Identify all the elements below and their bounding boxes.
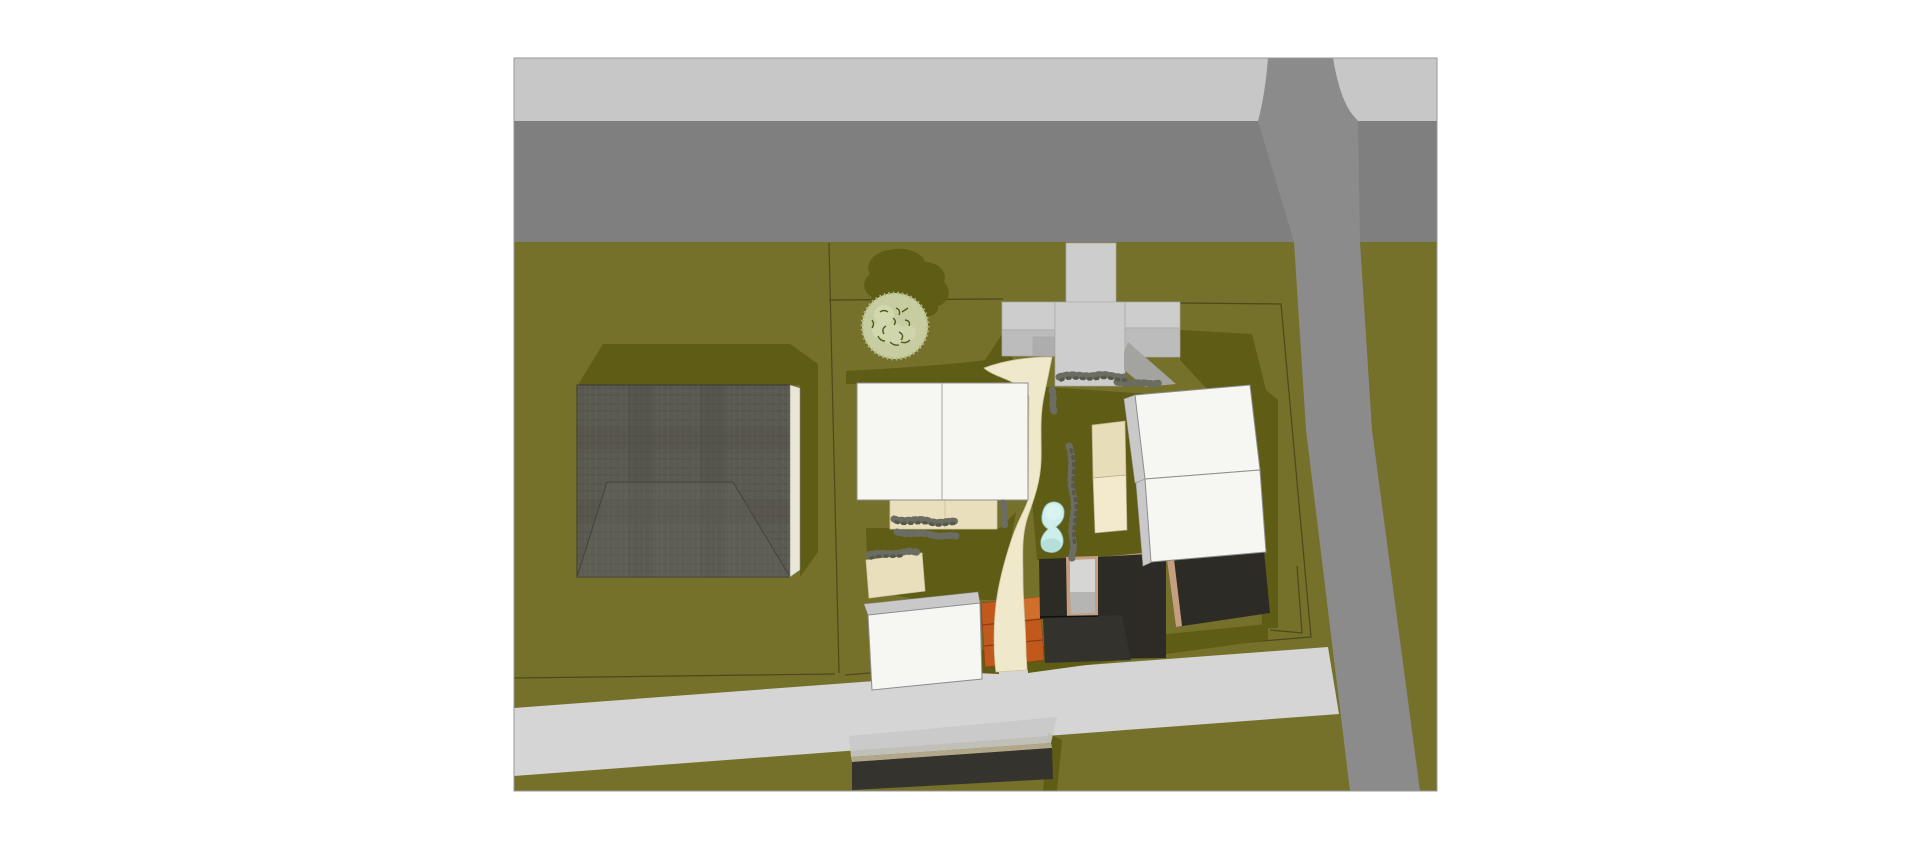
barn	[577, 385, 800, 577]
court-left-wing	[1002, 302, 1055, 330]
court-right-wing	[1125, 302, 1180, 328]
dark-block-c	[1043, 615, 1131, 663]
central-house	[857, 383, 1028, 500]
hedge-path-west	[1003, 503, 1005, 527]
barn-texture-row	[577, 428, 790, 450]
hedge-path-top	[1052, 390, 1054, 411]
barn-side-face	[790, 385, 800, 577]
tan-house-lower-slope	[1093, 475, 1127, 533]
driveway	[1066, 243, 1116, 303]
render-canvas[interactable]	[0, 0, 1920, 861]
courtyard-buildings	[1039, 553, 1166, 663]
hedge-terrace-2	[897, 532, 956, 536]
inset-court-lower	[1070, 592, 1095, 614]
hedge-small-terrace	[869, 551, 920, 555]
block-gap-line	[1040, 616, 1098, 617]
white-house-lower	[1145, 470, 1266, 562]
small-house	[864, 592, 982, 690]
tree-foliage-detail	[872, 322, 888, 338]
tree-foliage-detail	[896, 309, 914, 327]
pool-deep-end	[1041, 539, 1061, 552]
pool-highlight	[1045, 504, 1061, 520]
court-left-step	[1033, 337, 1055, 356]
inset-court-upper	[1070, 559, 1095, 592]
small-terrace	[866, 553, 925, 598]
tree-foliage-detail	[874, 305, 894, 325]
hedge-court-right	[1117, 382, 1160, 384]
white-house-upper	[1135, 385, 1260, 479]
tan-house-upper-slope	[1092, 421, 1126, 478]
garden-tree	[862, 293, 928, 359]
site-plan-svg	[0, 0, 1920, 861]
small-house-roof	[868, 603, 982, 690]
